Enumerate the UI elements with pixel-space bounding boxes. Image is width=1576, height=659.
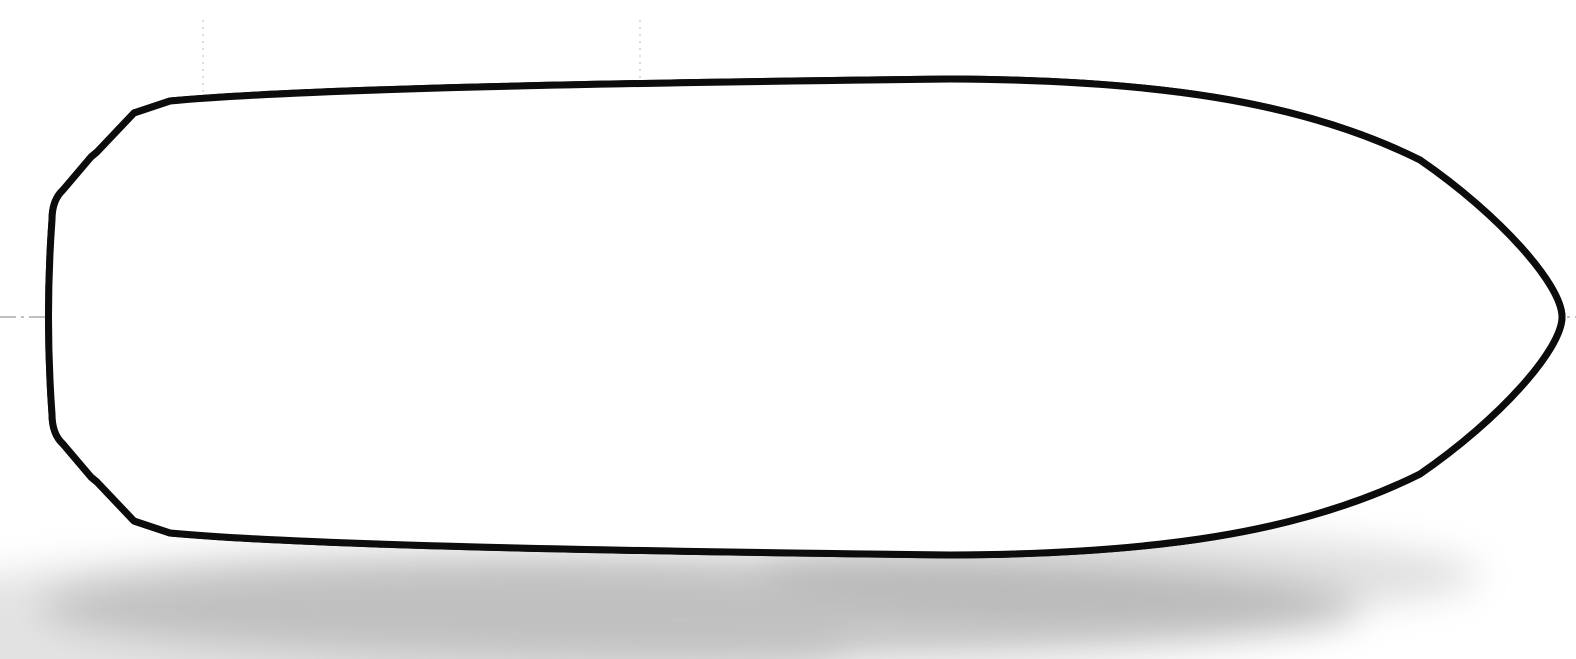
floorplan-svg: Diesel Diesel Genset <box>0 0 1576 659</box>
hull-outline-stroke <box>49 79 1563 555</box>
yacht-floorplan-canvas: Diesel Diesel Genset <box>0 0 1576 659</box>
